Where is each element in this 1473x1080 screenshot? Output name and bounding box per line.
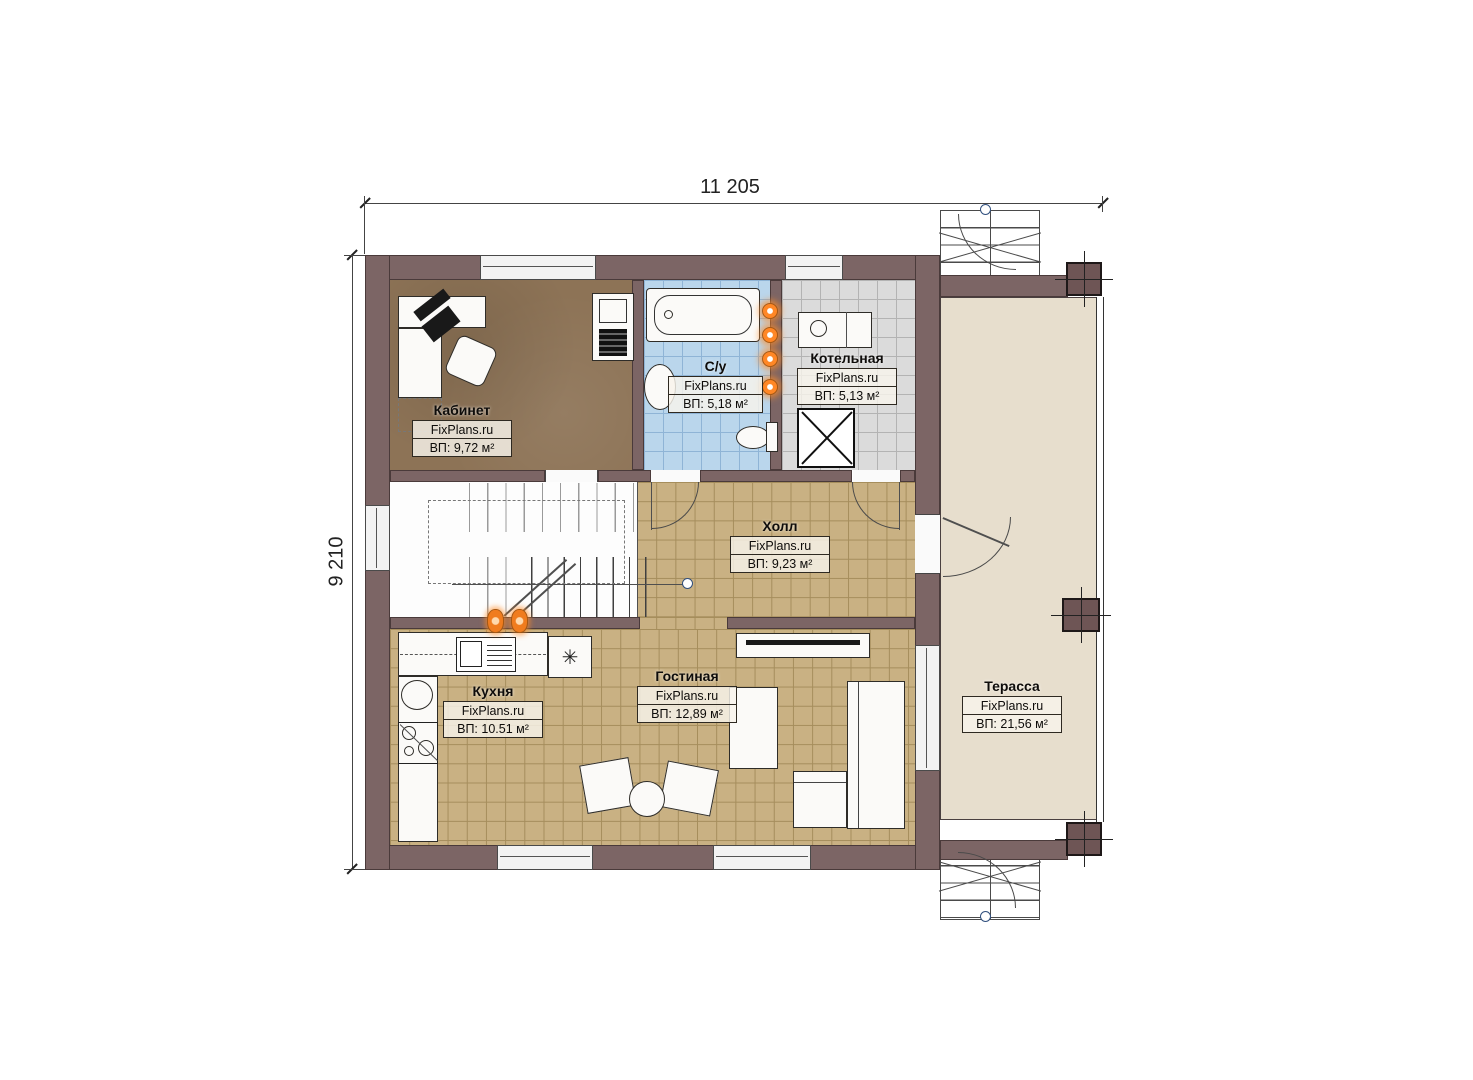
dimension-line-left [352, 255, 353, 870]
fridge: ✳ [548, 636, 592, 678]
room-name: Кабинет [412, 402, 512, 418]
boiler-divider [846, 312, 847, 348]
window-living [713, 845, 811, 870]
room-area: ВП: 9,72 м² [413, 439, 511, 456]
stair-walk-start-marker [682, 578, 693, 589]
room-label-kotelnaya: Котельная FixPlans.ru ВП: 5,13 м² [797, 350, 897, 405]
room-info-box: FixPlans.ru ВП: 5,13 м² [797, 368, 897, 405]
kitchen-sink-basin [460, 641, 482, 667]
wall-hall-living [727, 617, 915, 629]
radiator-icon [762, 351, 778, 367]
tv-stand [736, 633, 870, 658]
room-info-box: FixPlans.ru ВП: 9,72 м² [412, 420, 512, 457]
radiator-icon [762, 327, 778, 343]
window-office [480, 255, 596, 280]
tv [746, 640, 860, 645]
watermark-text: FixPlans.ru [798, 369, 896, 387]
radiator-icon [762, 303, 778, 319]
terrace-column-bottom [1066, 822, 1102, 856]
snowflake-icon: ✳ [562, 645, 579, 670]
toilet-bowl [736, 426, 770, 449]
window-boiler [785, 255, 843, 280]
watermark-text: FixPlans.ru [963, 697, 1061, 715]
office-door-opening [545, 470, 598, 482]
stair-stringer-line [637, 482, 638, 617]
room-label-gostinaya: Гостиная FixPlans.ru ВП: 12,89 м² [637, 668, 737, 723]
watermark-text: FixPlans.ru [731, 537, 829, 555]
coffee-table [629, 781, 665, 817]
boiler-door-leaf [899, 482, 900, 530]
room-label-su: С/у FixPlans.ru ВП: 5,18 м² [668, 358, 763, 413]
wall-mid-4 [900, 470, 915, 482]
armchair [579, 757, 637, 814]
dimension-witness-line [344, 255, 366, 256]
dimension-line-top [365, 203, 1103, 204]
sink-basin [599, 299, 627, 323]
sofa-seat-line [858, 682, 859, 828]
steps-marker [980, 204, 991, 215]
heater-icon [511, 609, 528, 633]
window-kitchen [497, 845, 593, 870]
room-info-box: FixPlans.ru ВП: 5,18 м² [668, 376, 763, 413]
stair-outline-dashed [428, 500, 625, 584]
window-stairs [365, 505, 390, 571]
room-area: ВП: 21,56 м² [963, 715, 1061, 732]
dimension-witness-line [1102, 196, 1103, 212]
room-name: Котельная [797, 350, 897, 366]
boiler-dial [810, 320, 827, 337]
wall-mid-3 [700, 470, 852, 482]
window-living-terrace [915, 645, 940, 771]
terrace-column-top [1066, 262, 1102, 296]
wall-top [365, 255, 940, 280]
room-info-box: FixPlans.ru ВП: 9,23 м² [730, 536, 830, 573]
kitchen-drainer [487, 641, 512, 667]
wall-mid-2 [598, 470, 651, 482]
watermark-text: FixPlans.ru [669, 377, 762, 395]
room-name: Гостиная [637, 668, 737, 684]
bathtub-drain [664, 310, 673, 319]
round-basin [401, 680, 433, 710]
chimney-shaft [797, 408, 855, 468]
boiler-door-opening [853, 470, 900, 482]
dish-rack [599, 329, 627, 356]
toilet-tank [766, 422, 778, 452]
armchair [659, 760, 719, 816]
wall-bottom [365, 845, 940, 870]
room-info-box: FixPlans.ru ВП: 10.51 м² [443, 701, 543, 738]
terrace-column-middle [1062, 598, 1100, 632]
room-name: Терасса [962, 678, 1062, 694]
dimension-label-width: 11 205 [665, 176, 795, 199]
burner [404, 746, 414, 756]
wall-mid-1 [390, 470, 545, 482]
room-name: Холл [730, 518, 830, 534]
steps-marker [980, 911, 991, 922]
room-name: С/у [668, 358, 763, 374]
heater-icon [487, 609, 504, 633]
terrace-wall-top [940, 275, 1068, 297]
terrace-railing [1096, 297, 1104, 822]
entrance-opening [915, 514, 940, 574]
bath-door-opening [651, 470, 700, 482]
radiator-icon [762, 379, 778, 395]
dimension-label-height: 9 210 [326, 507, 349, 617]
sofa-vertical [847, 681, 905, 829]
room-area: ВП: 5,13 м² [798, 387, 896, 404]
room-label-terassa: Терасса FixPlans.ru ВП: 21,56 м² [962, 678, 1062, 733]
room-info-box: FixPlans.ru ВП: 12,89 м² [637, 686, 737, 723]
watermark-text: FixPlans.ru [413, 421, 511, 439]
room-name: Кухня [443, 683, 543, 699]
boiler-unit [798, 312, 872, 348]
room-label-kabinet: Кабинет FixPlans.ru ВП: 9,72 м² [412, 402, 512, 457]
room-label-holl: Холл FixPlans.ru ВП: 9,23 м² [730, 518, 830, 573]
sofa-seat-line [794, 782, 846, 783]
room-area: ВП: 5,18 м² [669, 395, 762, 412]
dimension-witness-line [344, 869, 366, 870]
floor-plan: 11 205 9 210 [0, 0, 1473, 1080]
sofa-chaise [793, 771, 847, 828]
dimension-witness-line [364, 196, 365, 254]
watermark-text: FixPlans.ru [638, 687, 736, 705]
room-area: ВП: 12,89 м² [638, 705, 736, 722]
room-area: ВП: 10.51 м² [444, 720, 542, 737]
watermark-text: FixPlans.ru [444, 702, 542, 720]
stair-walk-line [452, 584, 688, 585]
room-info-box: FixPlans.ru ВП: 21,56 м² [962, 696, 1062, 733]
hall-living-passage [637, 617, 727, 629]
room-label-kuhnya: Кухня FixPlans.ru ВП: 10.51 м² [443, 683, 543, 738]
room-area: ВП: 9,23 м² [731, 555, 829, 572]
